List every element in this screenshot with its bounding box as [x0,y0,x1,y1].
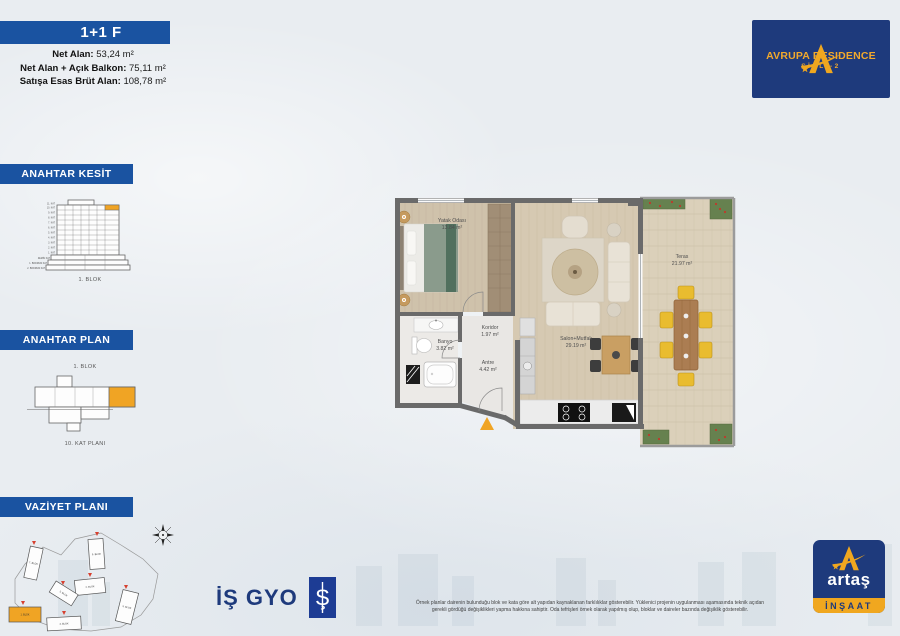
site-plan-diagram: 7. BLOK 6. BLOK 2. BLOK 3. BLOK 5. BLOK … [3,519,188,631]
svg-text:3. KAT: 3. KAT [48,242,55,245]
key-plan-diagram [25,374,145,438]
disclaimer-line-1: Örnek planlar dairenin bulunduğu blok ve… [383,600,797,607]
koridor-area: 1.97 m² [481,332,499,338]
site-blocks [9,538,139,630]
net-alan-balkon-label: Net Alan + Açık Balkon: [20,63,126,74]
antre-area: 4.42 m² [479,367,497,373]
compass-icon [152,524,174,546]
svg-text:4. BLOK: 4. BLOK [59,622,69,625]
isgyo-logo: İŞ GYO Ş [216,577,336,618]
entrance-marker [480,417,494,430]
antre-label: Antre [482,360,495,366]
brut-alan-row: Satışa Esas Brüt Alan: 108,78 m² [0,75,186,89]
salon-mutfak-label: Salon+Mutfak [560,336,592,342]
plan-caption: 10. KAT PLANI [25,441,145,447]
net-alan-label: Net Alan: [52,49,93,60]
plan-block-label: 1. BLOK [25,364,145,370]
artas-insaat-logo: artaş İNŞAAT [813,540,885,613]
anahtar-plan-banner: ANAHTAR PLAN [0,330,133,350]
kesit-caption: 1. BLOK [35,277,145,283]
floor-plan: Yatak Odası 13.84 m² Koridor 1.97 m² Ban… [390,190,740,462]
avrupa-a-star-icon [798,43,844,75]
svg-text:10. KAT: 10. KAT [47,207,56,210]
anahtar-kesit-banner: ANAHTAR KESİT [0,164,133,184]
svg-text:ZEMİN KAT: ZEMİN KAT [38,257,51,260]
yatak-odasi-label: Yatak Odası [438,218,466,224]
net-alan-balkon-row: Net Alan + Açık Balkon: 75,11 m² [0,62,186,76]
avrupa-residence-logo: AVRUPA RESIDENCE ŞİŞLİ-2 [752,20,890,98]
koridor-label: Koridor [482,325,499,331]
svg-text:4. KAT: 4. KAT [48,237,55,240]
net-alan-value: 53,24 m² [96,49,134,60]
artas-sub: İNŞAAT [813,598,885,613]
svg-text:11. KAT: 11. KAT [47,202,56,205]
svg-text:6. KAT: 6. KAT [48,227,55,230]
yatak-odasi-area: 13.84 m² [442,225,463,231]
area-info: Net Alan: 53,24 m² Net Alan + Açık Balko… [0,48,186,89]
highlighted-floor-cell [105,205,119,210]
svg-text:1. KAT: 1. KAT [48,252,55,255]
banyo-area: 3.82 m² [436,346,454,352]
svg-text:2. BODRUM KAT: 2. BODRUM KAT [27,267,45,270]
brut-alan-label: Satışa Esas Brüt Alan: [20,76,121,87]
highlighted-unit [109,387,135,407]
anahtar-kesit-title: ANAHTAR KESİT [21,168,111,180]
svg-text:7. KAT: 7. KAT [48,222,55,225]
isgyo-name: İŞ GYO [216,585,298,611]
svg-text:1. BLOK: 1. BLOK [20,614,29,617]
svg-text:8. KAT: 8. KAT [48,217,55,220]
net-alan-balkon-value: 75,11 m² [129,63,166,74]
isbank-icon: Ş [309,577,336,618]
floorplan-brochure-page: 1+1 F Net Alan: 53,24 m² Net Alan + Açık… [0,0,900,636]
artas-a-star-icon [830,545,868,572]
unit-type-banner: 1+1 F [0,21,170,44]
vaziyet-plani-title: VAZİYET PLANI [25,501,108,513]
brut-alan-value: 108,78 m² [123,76,166,87]
teras-label: Teras [676,254,689,260]
svg-text:2. KAT: 2. KAT [48,247,55,250]
salon-mutfak-area: 29.19 m² [566,343,587,349]
disclaimer-text: Örnek planlar dairenin bulunduğu blok ve… [383,600,797,613]
banyo-label: Banyo [438,339,453,345]
vaziyet-plani-banner: VAZİYET PLANI [0,497,133,517]
disclaimer-line-2: gerekli gördüğü değişiklikleri yapma hak… [383,607,797,614]
wardrobe [488,204,513,312]
teras-area: 21.97 m² [672,261,693,267]
building-section-diagram: 11. KAT 10. KAT 9. KAT 8. KAT 7. KAT 6. … [35,198,145,276]
unit-type-label: 1+1 F [48,24,121,41]
svg-text:1. BODRUM KAT: 1. BODRUM KAT [29,262,47,265]
artas-name: artaş [827,570,870,590]
svg-text:5. KAT: 5. KAT [48,232,55,235]
anahtar-plan-title: ANAHTAR PLAN [23,334,110,346]
svg-text:9. KAT: 9. KAT [48,212,55,215]
net-alan-row: Net Alan: 53,24 m² [0,48,186,62]
